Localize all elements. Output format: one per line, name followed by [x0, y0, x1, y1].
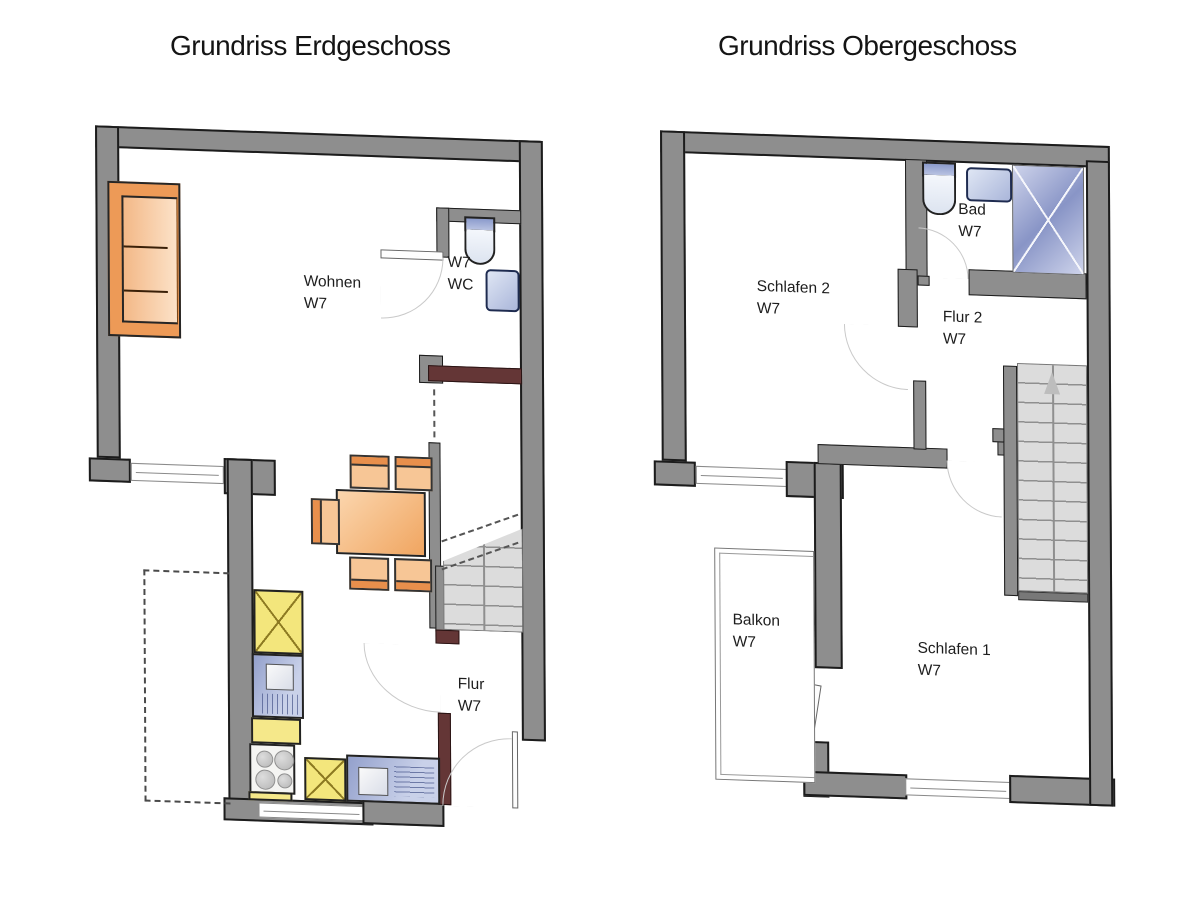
- window-left: [696, 466, 788, 487]
- staircase: [443, 526, 523, 633]
- terrace-dashed-outline: [143, 569, 230, 804]
- kitchen-cabinet-cross: [253, 589, 303, 655]
- chair: [395, 456, 433, 491]
- room-unit: W7: [447, 252, 473, 275]
- room-label-schlafen2: Schlafen 2 W7: [757, 276, 830, 324]
- shower: [1012, 165, 1085, 276]
- kitchen-door-arc: [364, 643, 441, 713]
- sofa: [107, 181, 181, 339]
- room-label-flur2: Flur 2 W7: [943, 306, 983, 352]
- room-name: Balkon: [732, 609, 779, 633]
- entry-door-leaf: [512, 731, 518, 808]
- stair-side-wall: [1003, 365, 1018, 596]
- wc-door-arc: [381, 255, 444, 320]
- stair-center-line: [1052, 365, 1055, 591]
- wall-end-cap: [89, 457, 131, 482]
- flur-wall-maroon-elbow: [435, 630, 459, 645]
- toilet-bowl: [922, 175, 956, 216]
- chair-backrest: [397, 458, 431, 468]
- wc-wall-stub: [436, 207, 449, 257]
- right-plan-title: Grundriss Obergeschoss: [718, 30, 1017, 62]
- entry-door-arc: [442, 736, 512, 808]
- kitchen-appliance: [252, 653, 304, 719]
- chair: [349, 556, 389, 590]
- left-plan-title: Grundriss Erdgeschoss: [170, 30, 451, 62]
- chair-backrest: [396, 580, 430, 590]
- room-label-schlafen1: Schlafen 1 W7: [918, 638, 991, 686]
- sink-basin: [358, 767, 388, 796]
- schlafen1-door-arc: [947, 461, 1002, 518]
- stove-burner: [274, 750, 294, 771]
- room-name: WC: [448, 274, 474, 297]
- balcony-inner-rail: [719, 553, 814, 778]
- room-unit: W7: [733, 632, 780, 656]
- room-label-bad: Bad W7: [958, 199, 986, 245]
- room-name: Schlafen 2: [757, 276, 830, 301]
- wc-bottom-wall-maroon: [428, 365, 522, 384]
- washbasin: [485, 269, 519, 312]
- chair-backrest: [351, 579, 387, 589]
- staircase: [1017, 363, 1088, 594]
- appliance-hatch: [262, 694, 298, 715]
- appliance-panel: [266, 664, 294, 691]
- room-label-wohnen: Wohnen W7: [304, 271, 362, 318]
- stair-dash-vertical: [433, 389, 435, 437]
- kitchen-cabinet-cross: [304, 757, 346, 801]
- stove-burner: [256, 750, 273, 768]
- chair-backrest: [313, 500, 322, 542]
- balcony-side-wall: [814, 462, 843, 669]
- room-unit: W7: [958, 221, 986, 244]
- room-label-wc: W7 WC: [447, 252, 473, 298]
- stove: [249, 743, 295, 795]
- outer-wall-bottom: [803, 771, 907, 800]
- room-name: Flur: [458, 673, 485, 696]
- sofa-seat: [121, 195, 178, 324]
- stair-direction-arrow: [1044, 372, 1060, 395]
- room-unit: W7: [943, 329, 983, 353]
- room-unit: W7: [918, 660, 991, 685]
- room-label-balkon: Balkon W7: [732, 609, 780, 656]
- room-name: Schlafen 1: [918, 638, 991, 663]
- room-name: Wohnen: [304, 271, 362, 295]
- room-unit: W7: [304, 293, 362, 317]
- outer-wall-right: [519, 140, 546, 741]
- outer-wall-top: [95, 125, 541, 163]
- window-left: [131, 463, 224, 484]
- schlafen2-door-arc: [844, 324, 908, 390]
- outer-wall-right: [1086, 160, 1113, 806]
- wall-end-cap: [654, 460, 696, 486]
- washbasin: [966, 167, 1012, 203]
- chair: [350, 454, 390, 489]
- upper-floor-plan: Schlafen 2 W7 Flur 2 W7 Bad W7 Balkon W7…: [650, 120, 1193, 839]
- room-name: Flur 2: [943, 306, 983, 330]
- stair-center-line: [483, 528, 485, 630]
- dining-table: [336, 489, 426, 557]
- floorplan-canvas: Grundriss Erdgeschoss Grundriss Obergesc…: [0, 0, 1200, 900]
- flur2-wall-stub: [913, 380, 926, 450]
- chair: [311, 498, 340, 545]
- schlafen2-partition-wall: [898, 269, 918, 328]
- balcony: [714, 548, 815, 784]
- ground-floor-plan: Wohnen W7 W7 WC Flur W7: [85, 115, 588, 853]
- chair: [394, 558, 432, 592]
- stove-burner: [255, 769, 275, 790]
- wall-notch: [992, 428, 1004, 442]
- kitchen-counter: [248, 791, 292, 802]
- room-label-flur: Flur W7: [458, 673, 485, 719]
- room-unit: W7: [458, 696, 485, 719]
- drainer-hatch: [394, 766, 434, 797]
- stove-burner: [277, 773, 292, 789]
- kitchen-counter: [251, 717, 301, 745]
- room-unit: W7: [757, 298, 830, 323]
- outer-wall-top: [660, 130, 1110, 168]
- chair-backrest: [352, 457, 388, 467]
- window-bottom: [905, 778, 1011, 799]
- room-name: Bad: [958, 199, 986, 222]
- outer-wall-left: [660, 130, 687, 461]
- kitchen-sink-unit: [346, 755, 440, 805]
